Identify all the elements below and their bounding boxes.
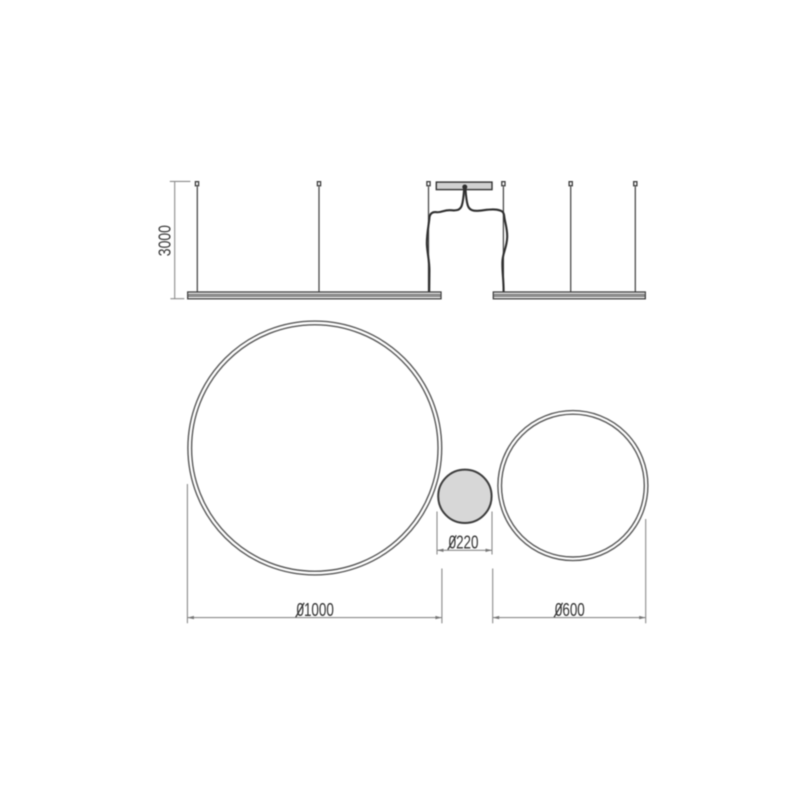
svg-text:0220: 0220 [449, 532, 479, 553]
svg-text:0600: 0600 [555, 600, 585, 621]
svg-text:3000: 3000 [156, 225, 175, 256]
svg-text:01000: 01000 [297, 600, 334, 621]
